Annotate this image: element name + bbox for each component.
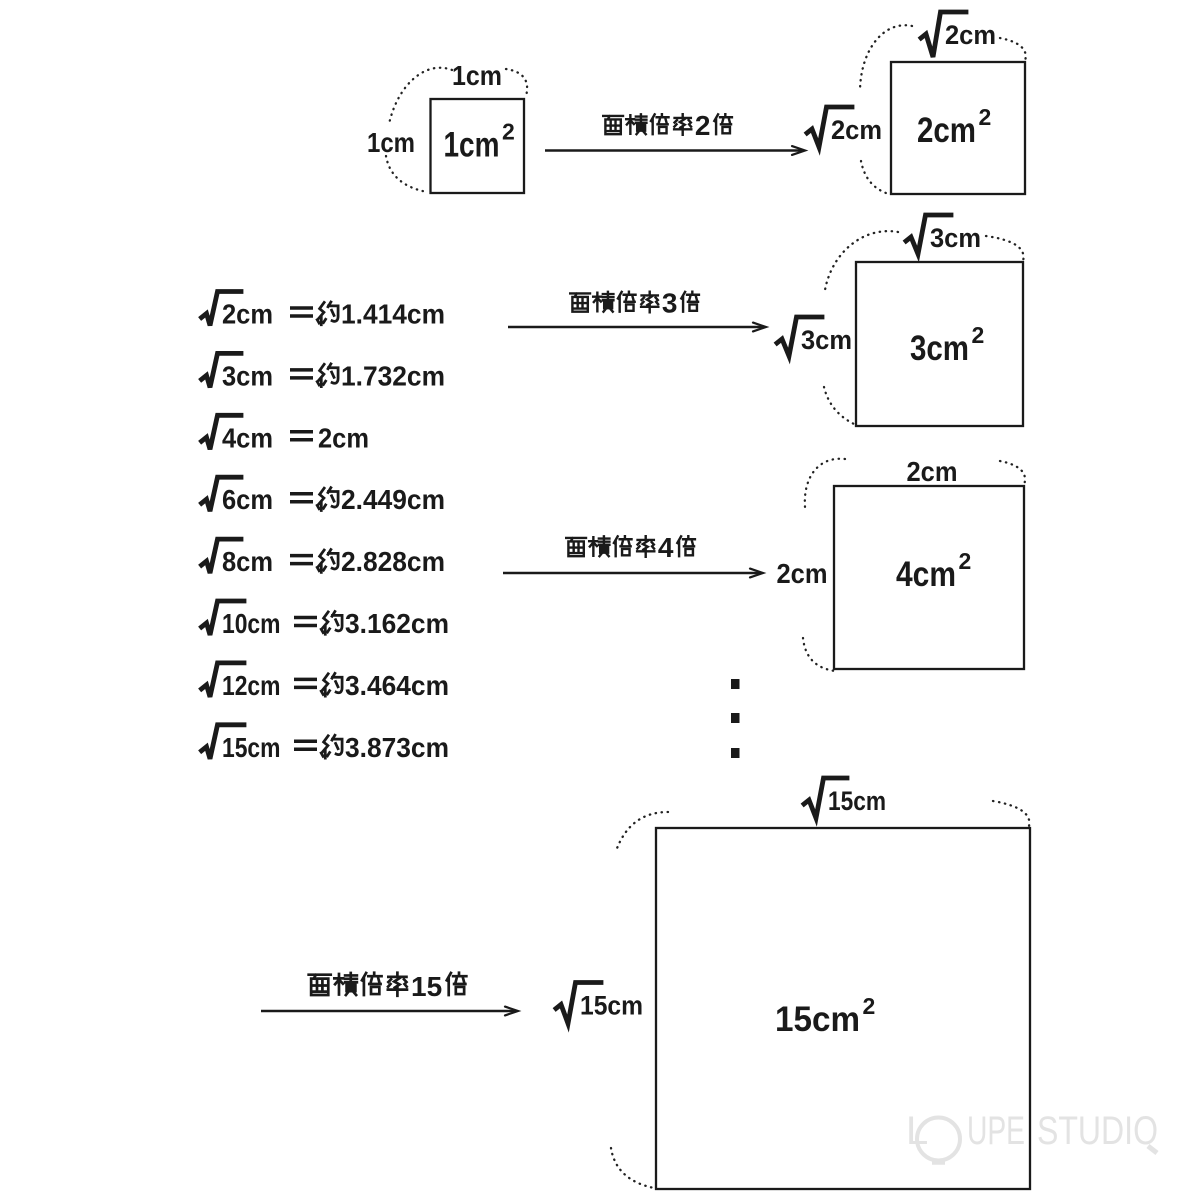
- svg-text:3.873cm: 3.873cm: [345, 732, 449, 763]
- svg-text:1cm: 1cm: [452, 60, 502, 91]
- svg-text:15cm: 15cm: [775, 1000, 860, 1039]
- svg-text:2cm: 2cm: [907, 456, 958, 487]
- svg-text:2: 2: [979, 104, 992, 130]
- svg-text:2: 2: [695, 110, 711, 141]
- svg-text:12cm: 12cm: [222, 670, 281, 701]
- svg-text:4cm: 4cm: [896, 555, 956, 594]
- svg-text:1.732cm: 1.732cm: [341, 360, 445, 391]
- svg-text:3: 3: [662, 288, 678, 319]
- svg-text:6cm: 6cm: [222, 484, 273, 515]
- svg-text:4: 4: [658, 532, 674, 563]
- svg-text:15cm: 15cm: [828, 786, 886, 816]
- svg-text:3.464cm: 3.464cm: [345, 670, 449, 701]
- svg-text:1cm: 1cm: [367, 127, 415, 158]
- svg-text:STUDIO: STUDIO: [1037, 1109, 1158, 1153]
- svg-text:2: 2: [863, 993, 876, 1019]
- svg-text:2: 2: [502, 119, 515, 145]
- svg-text:15cm: 15cm: [580, 991, 643, 1021]
- svg-text:2.449cm: 2.449cm: [341, 484, 445, 515]
- svg-text:3cm: 3cm: [910, 329, 969, 368]
- svg-text:3.162cm: 3.162cm: [345, 608, 449, 639]
- svg-text:15cm: 15cm: [222, 732, 281, 763]
- svg-text:2cm: 2cm: [777, 558, 828, 589]
- svg-text:2cm: 2cm: [222, 299, 273, 330]
- svg-text:3cm: 3cm: [222, 360, 273, 391]
- svg-text:3cm: 3cm: [930, 223, 981, 253]
- svg-text:1cm: 1cm: [444, 126, 500, 165]
- svg-text:3cm: 3cm: [801, 325, 852, 355]
- svg-text:1.414cm: 1.414cm: [341, 299, 445, 330]
- svg-text:2cm: 2cm: [917, 111, 976, 150]
- svg-text:UPE: UPE: [967, 1109, 1025, 1153]
- svg-text:2cm: 2cm: [831, 115, 882, 145]
- svg-text:10cm: 10cm: [222, 608, 281, 639]
- svg-text:2cm: 2cm: [945, 20, 996, 50]
- svg-text:15: 15: [411, 971, 442, 1002]
- svg-text:2: 2: [959, 548, 972, 574]
- svg-text:2: 2: [972, 322, 985, 348]
- svg-text:2.828cm: 2.828cm: [341, 546, 445, 577]
- svg-text:8cm: 8cm: [222, 546, 273, 577]
- svg-text:2cm: 2cm: [318, 422, 369, 453]
- svg-text:4cm: 4cm: [222, 422, 273, 453]
